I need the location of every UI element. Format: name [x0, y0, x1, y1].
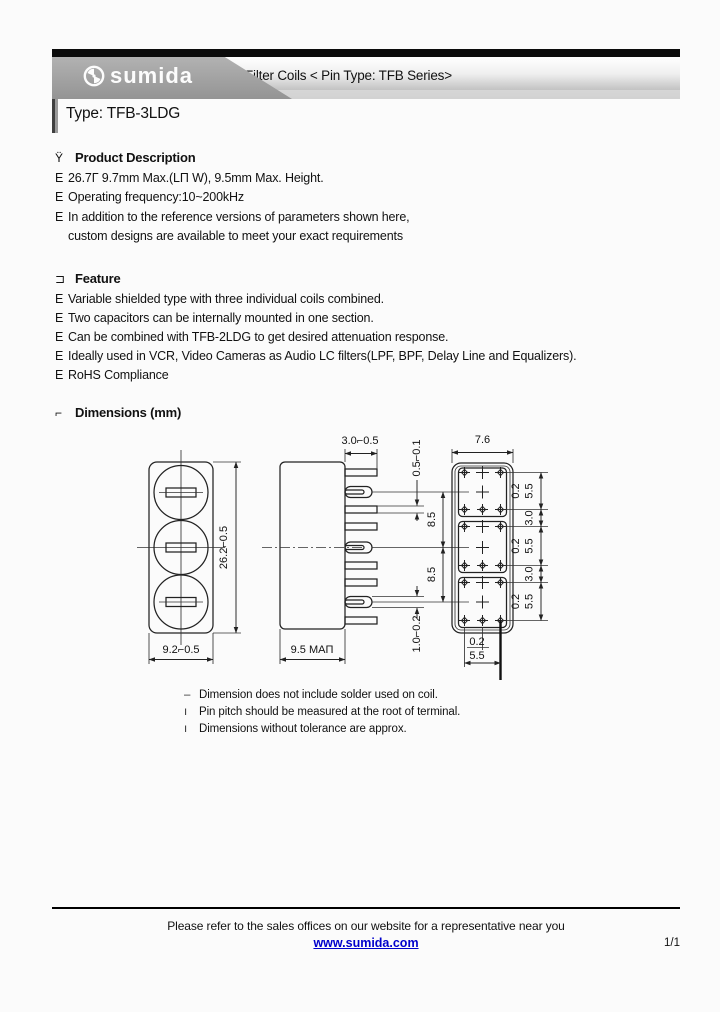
dim-top-width: 7.6	[475, 434, 490, 446]
item-text: Two capacitors can be internally mounted…	[68, 311, 374, 325]
item-bullet: E	[55, 311, 68, 325]
dim-row-offset-3: 0.2	[510, 594, 522, 609]
dim-pin-thickness: 0.5⌐0.1	[411, 439, 423, 476]
dimensions-drawing: 26.2⌐0.5 9.2⌐0.5 3.0⌐0.5 0.5⌐0.1	[36, 424, 636, 686]
document-title: Filter Coils < Pin Type: TFB Series>	[245, 68, 452, 83]
dim-row-offset-1: 0.2	[510, 483, 522, 498]
page-title: Type: TFB-3LDG	[66, 105, 180, 123]
item-bullet: E	[55, 171, 68, 185]
item-text: Operating frequency:10~200kHz	[68, 190, 244, 204]
list-item: ECan be combined with TFB-2LDG to get de…	[55, 330, 655, 349]
note-text: Dimensions without tolerance are approx.	[199, 723, 407, 735]
list-item: EOperating frequency:10~200kHz	[55, 190, 655, 209]
list-item: EVariable shielded type with three indiv…	[55, 292, 655, 311]
item-text: 26.7Γ 9.7mm Max.(LΠ W), 9.5mm Max. Heigh…	[68, 171, 324, 185]
item-text: In addition to the reference versions of…	[68, 210, 409, 224]
item-text: RoHS Compliance	[68, 368, 169, 382]
list-item: E26.7Γ 9.7mm Max.(LΠ W), 9.5mm Max. Heig…	[55, 171, 655, 190]
brand-band: sumida	[52, 57, 292, 99]
sumida-pinwheel-icon	[82, 64, 106, 88]
section-marker: ⊐	[55, 272, 75, 286]
item-text: Can be combined with TFB-2LDG to get des…	[68, 330, 448, 344]
item-text: Ideally used in VCR, Video Cameras as Au…	[68, 349, 576, 363]
item-bullet: E	[55, 210, 68, 224]
footer-note: Please refer to the sales offices on our…	[52, 919, 680, 933]
list-item: EIn addition to the reference versions o…	[55, 210, 655, 229]
item-text: custom designs are available to meet you…	[68, 229, 403, 243]
dim-row-span-2: 5.5	[524, 538, 536, 553]
note-bullet: ı	[184, 706, 199, 718]
heading-text: Dimensions (mm)	[75, 405, 181, 420]
brand-name: sumida	[110, 65, 193, 87]
bottom-view: 7.6 0.2 5.5 3.0 0.2 5.5 3.0 0.2 5.5 0.2 …	[452, 434, 548, 680]
item-bullet: E	[55, 349, 68, 363]
sumida-logo: sumida	[82, 64, 193, 88]
dim-front-height: 26.2⌐0.5	[218, 526, 230, 569]
dim-row-gap-2: 3.0	[524, 566, 536, 581]
dim-side-width: 9.5 MAΠ	[291, 644, 334, 656]
side-view: 3.0⌐0.5 0.5⌐0.1 1.0⌐0.2 9.5 MAΠ	[262, 435, 424, 664]
list-item: ERoHS Compliance	[55, 368, 655, 387]
product-description-heading: ŸProduct Description	[55, 150, 195, 165]
website-link[interactable]: www.sumida.com	[313, 936, 418, 950]
section-marker: Ÿ	[55, 151, 75, 165]
note-item: –Dimension does not include solder used …	[184, 689, 460, 706]
note-item: ıPin pitch should be measured at the roo…	[184, 706, 460, 723]
item-bullet: E	[55, 330, 68, 344]
note-text: Dimension does not include solder used o…	[199, 689, 438, 701]
pitch-dims: 8.5 8.5	[372, 492, 469, 602]
dim-row-span-3: 5.5	[524, 594, 536, 609]
item-bullet: E	[55, 190, 68, 204]
dim-bottom-offset: 0.2	[469, 636, 484, 648]
list-item: EIdeally used in VCR, Video Cameras as A…	[55, 349, 655, 368]
section-marker: ⌐	[55, 406, 75, 420]
item-text: Variable shielded type with three indivi…	[68, 292, 384, 306]
note-bullet: –	[184, 689, 199, 701]
type-accent-bar	[52, 99, 58, 133]
dim-row-gap-1: 3.0	[524, 510, 536, 525]
note-text: Pin pitch should be measured at the root…	[199, 706, 460, 718]
dim-front-width: 9.2⌐0.5	[162, 644, 199, 656]
product-description-list: E26.7Γ 9.7mm Max.(LΠ W), 9.5mm Max. Heig…	[55, 171, 655, 248]
note-bullet: ı	[184, 723, 199, 735]
dim-pitch-b: 8.5	[426, 567, 438, 582]
dim-bottom-span: 5.5	[469, 650, 484, 662]
heading-text: Product Description	[75, 150, 195, 165]
dimension-notes: –Dimension does not include solder used …	[184, 689, 460, 740]
footer-rule	[52, 907, 680, 909]
item-bullet: E	[55, 368, 68, 382]
item-bullet: E	[55, 292, 68, 306]
dimensions-heading: ⌐Dimensions (mm)	[55, 405, 181, 420]
header-black-bar	[52, 49, 680, 57]
front-view: 26.2⌐0.5 9.2⌐0.5	[137, 450, 241, 664]
heading-text: Feature	[75, 271, 121, 286]
list-item: custom designs are available to meet you…	[55, 229, 655, 248]
page-number: 1/1	[634, 937, 680, 949]
list-item: ETwo capacitors can be internally mounte…	[55, 311, 655, 330]
dim-pin-length: 3.0⌐0.5	[341, 435, 378, 447]
footer-link-row: www.sumida.com	[52, 936, 680, 950]
note-item: ıDimensions without tolerance are approx…	[184, 723, 460, 740]
dim-pin-root: 1.0⌐0.2	[411, 615, 423, 652]
feature-heading: ⊐Feature	[55, 271, 121, 286]
header-band: Filter Coils < Pin Type: TFB Series> sum…	[52, 57, 680, 99]
dim-row-span-1: 5.5	[524, 483, 536, 498]
dim-row-offset-2: 0.2	[510, 538, 522, 553]
feature-list: EVariable shielded type with three indiv…	[55, 292, 655, 387]
dim-pitch-a: 8.5	[426, 512, 438, 527]
